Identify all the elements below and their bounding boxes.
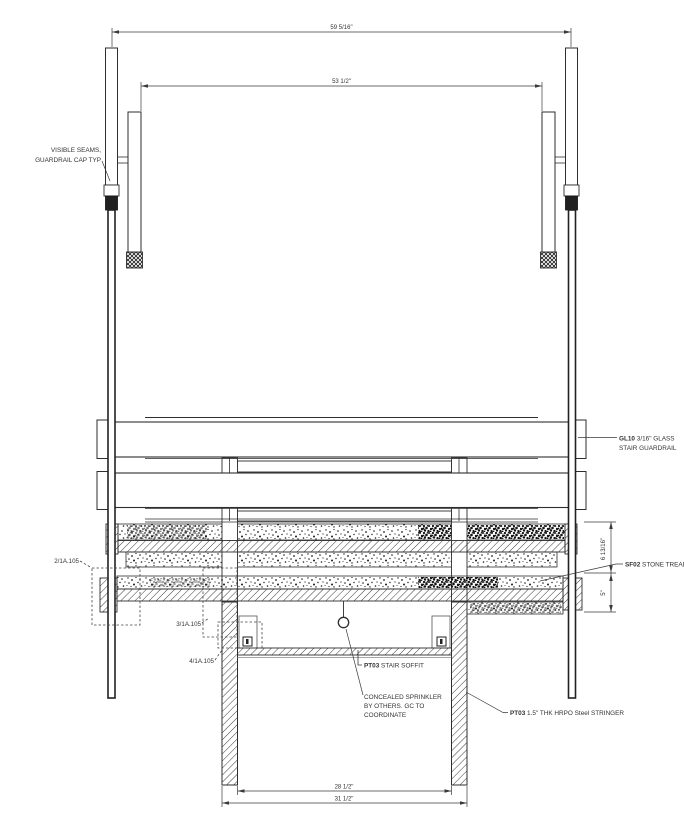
stringer-left bbox=[222, 602, 238, 785]
dim-overall-width: 59 5/16" bbox=[330, 25, 352, 31]
dim-rail-width: 53 1/2" bbox=[332, 79, 351, 85]
steel-plate-upper bbox=[118, 541, 565, 553]
stone-band-2 bbox=[126, 552, 557, 567]
rail-bar-2-cap-left bbox=[97, 472, 109, 510]
glass-guardrail-text-1: GL10 3/16" GLASS bbox=[619, 436, 675, 443]
stair-section-drawing: 59 5/16" 53 1/2" 6 13/16" 5" 28 1/2" 31 … bbox=[0, 0, 684, 836]
stone-band-1-dark-right bbox=[418, 525, 564, 539]
steel-stringer-text: PT03 1.5" THK HRPO Steel STRINGER bbox=[510, 710, 624, 717]
stone-band-4-dark bbox=[470, 603, 561, 613]
ref-detail-4-leader bbox=[215, 650, 222, 660]
inner-post-right bbox=[542, 112, 555, 252]
dimension-soffit-widths: 28 1/2" 31 1/2" bbox=[222, 785, 467, 808]
recessed-rail-2 bbox=[238, 511, 452, 521]
glass-rest: 3/16" GLASS bbox=[635, 436, 675, 443]
rail-bar-1-cap-left bbox=[97, 420, 109, 459]
dim-tread-height-upper: 6 13/16" bbox=[601, 538, 607, 560]
outer-post-left-base bbox=[106, 196, 118, 210]
dim-tread-height-lower: 5" bbox=[601, 590, 607, 595]
sprinkler-text-1: CONCEALED SPRINKLER bbox=[364, 694, 442, 701]
dim-soffit-outer-width: 31 1/2" bbox=[335, 797, 354, 803]
rail-bar-1 bbox=[109, 422, 575, 457]
ref-detail-4-text: 4/1A.105 bbox=[189, 658, 214, 665]
glass-tag: GL10 bbox=[619, 436, 635, 443]
outer-post-right-base bbox=[566, 196, 578, 210]
soffit-plate bbox=[238, 648, 452, 655]
inner-post-left-base bbox=[127, 252, 143, 268]
steel-plate-lower bbox=[117, 589, 563, 601]
visible-seams-text-1: VISIBLE SEAMS, bbox=[51, 147, 101, 154]
stair-soffit-text: PT03 STAIR SOFFIT bbox=[364, 663, 424, 670]
soffit-rest: STAIR SOFFIT bbox=[379, 663, 424, 670]
soffit-tag: PT03 bbox=[364, 663, 380, 670]
ref-detail-3-text: 3/1A.105 bbox=[176, 621, 201, 628]
dimension-tread-heights: 6 13/16" 5" bbox=[584, 522, 616, 612]
sprinkler-head-icon bbox=[338, 617, 348, 627]
sprinkler-text-2: BY OTHERS. GC TO bbox=[364, 703, 424, 710]
stone-band-3-dark bbox=[418, 577, 498, 588]
stringer-rest: 1.5" THK HRPO Steel STRINGER bbox=[525, 710, 624, 717]
stair-section-sheet: 59 5/16" 53 1/2" 6 13/16" 5" 28 1/2" 31 … bbox=[0, 0, 684, 836]
dimension-overall-width: 59 5/16" bbox=[112, 25, 571, 47]
glass-guardrail-text-2: STAIR GUARDRAIL bbox=[619, 445, 677, 452]
stringer-right bbox=[452, 602, 468, 785]
recessed-rail-1 bbox=[238, 461, 452, 472]
dim-soffit-inner-width: 28 1/2" bbox=[335, 785, 354, 791]
channel-clip-left-mark bbox=[246, 639, 249, 644]
label-visible-seams: VISIBLE SEAMS, GUARDRAIL CAP TYP bbox=[35, 147, 110, 181]
stone-band-1-dark-left bbox=[127, 525, 207, 539]
label-steel-stringer: PT03 1.5" THK HRPO Steel STRINGER bbox=[466, 692, 624, 717]
glass-panel-right bbox=[569, 210, 576, 698]
visible-seams-text-2: GUARDRAIL CAP TYP bbox=[35, 157, 101, 164]
outer-post-left-cap bbox=[104, 185, 119, 196]
label-concealed-sprinkler: CONCEALED SPRINKLER BY OTHERS. GC TO COO… bbox=[346, 629, 442, 719]
outer-post-left bbox=[106, 48, 118, 185]
stone-tag: SF02 bbox=[625, 562, 641, 569]
sprinkler bbox=[338, 601, 348, 628]
ref-detail-2-leader bbox=[80, 561, 91, 568]
outer-post-right bbox=[566, 48, 578, 185]
steel-tread-plates bbox=[117, 541, 565, 615]
stone-rest: STONE TREAD bbox=[640, 562, 684, 569]
dimension-rail-width: 53 1/2" bbox=[141, 79, 542, 111]
label-glass-guardrail: GL10 3/16" GLASS STAIR GUARDRAIL bbox=[578, 436, 677, 453]
inner-post-left bbox=[128, 112, 141, 252]
glass-guardrail-rails bbox=[97, 418, 586, 523]
rail-bar-2 bbox=[109, 473, 575, 508]
stone-band-3-dark2 bbox=[150, 578, 210, 587]
outer-post-right-cap bbox=[564, 185, 579, 196]
inner-post-right-base bbox=[541, 252, 557, 268]
steel-stringer-leader bbox=[466, 692, 508, 713]
ref-detail-2-text: 2/1A.105 bbox=[54, 558, 79, 565]
sprinkler-text-3: COORDINATE bbox=[364, 712, 406, 719]
channel-clip-right-mark bbox=[440, 639, 443, 644]
stone-tread-text: SF02 STONE TREAD bbox=[625, 562, 684, 569]
sprinkler-leader bbox=[346, 629, 363, 695]
stringer-tag: PT03 bbox=[510, 710, 526, 717]
